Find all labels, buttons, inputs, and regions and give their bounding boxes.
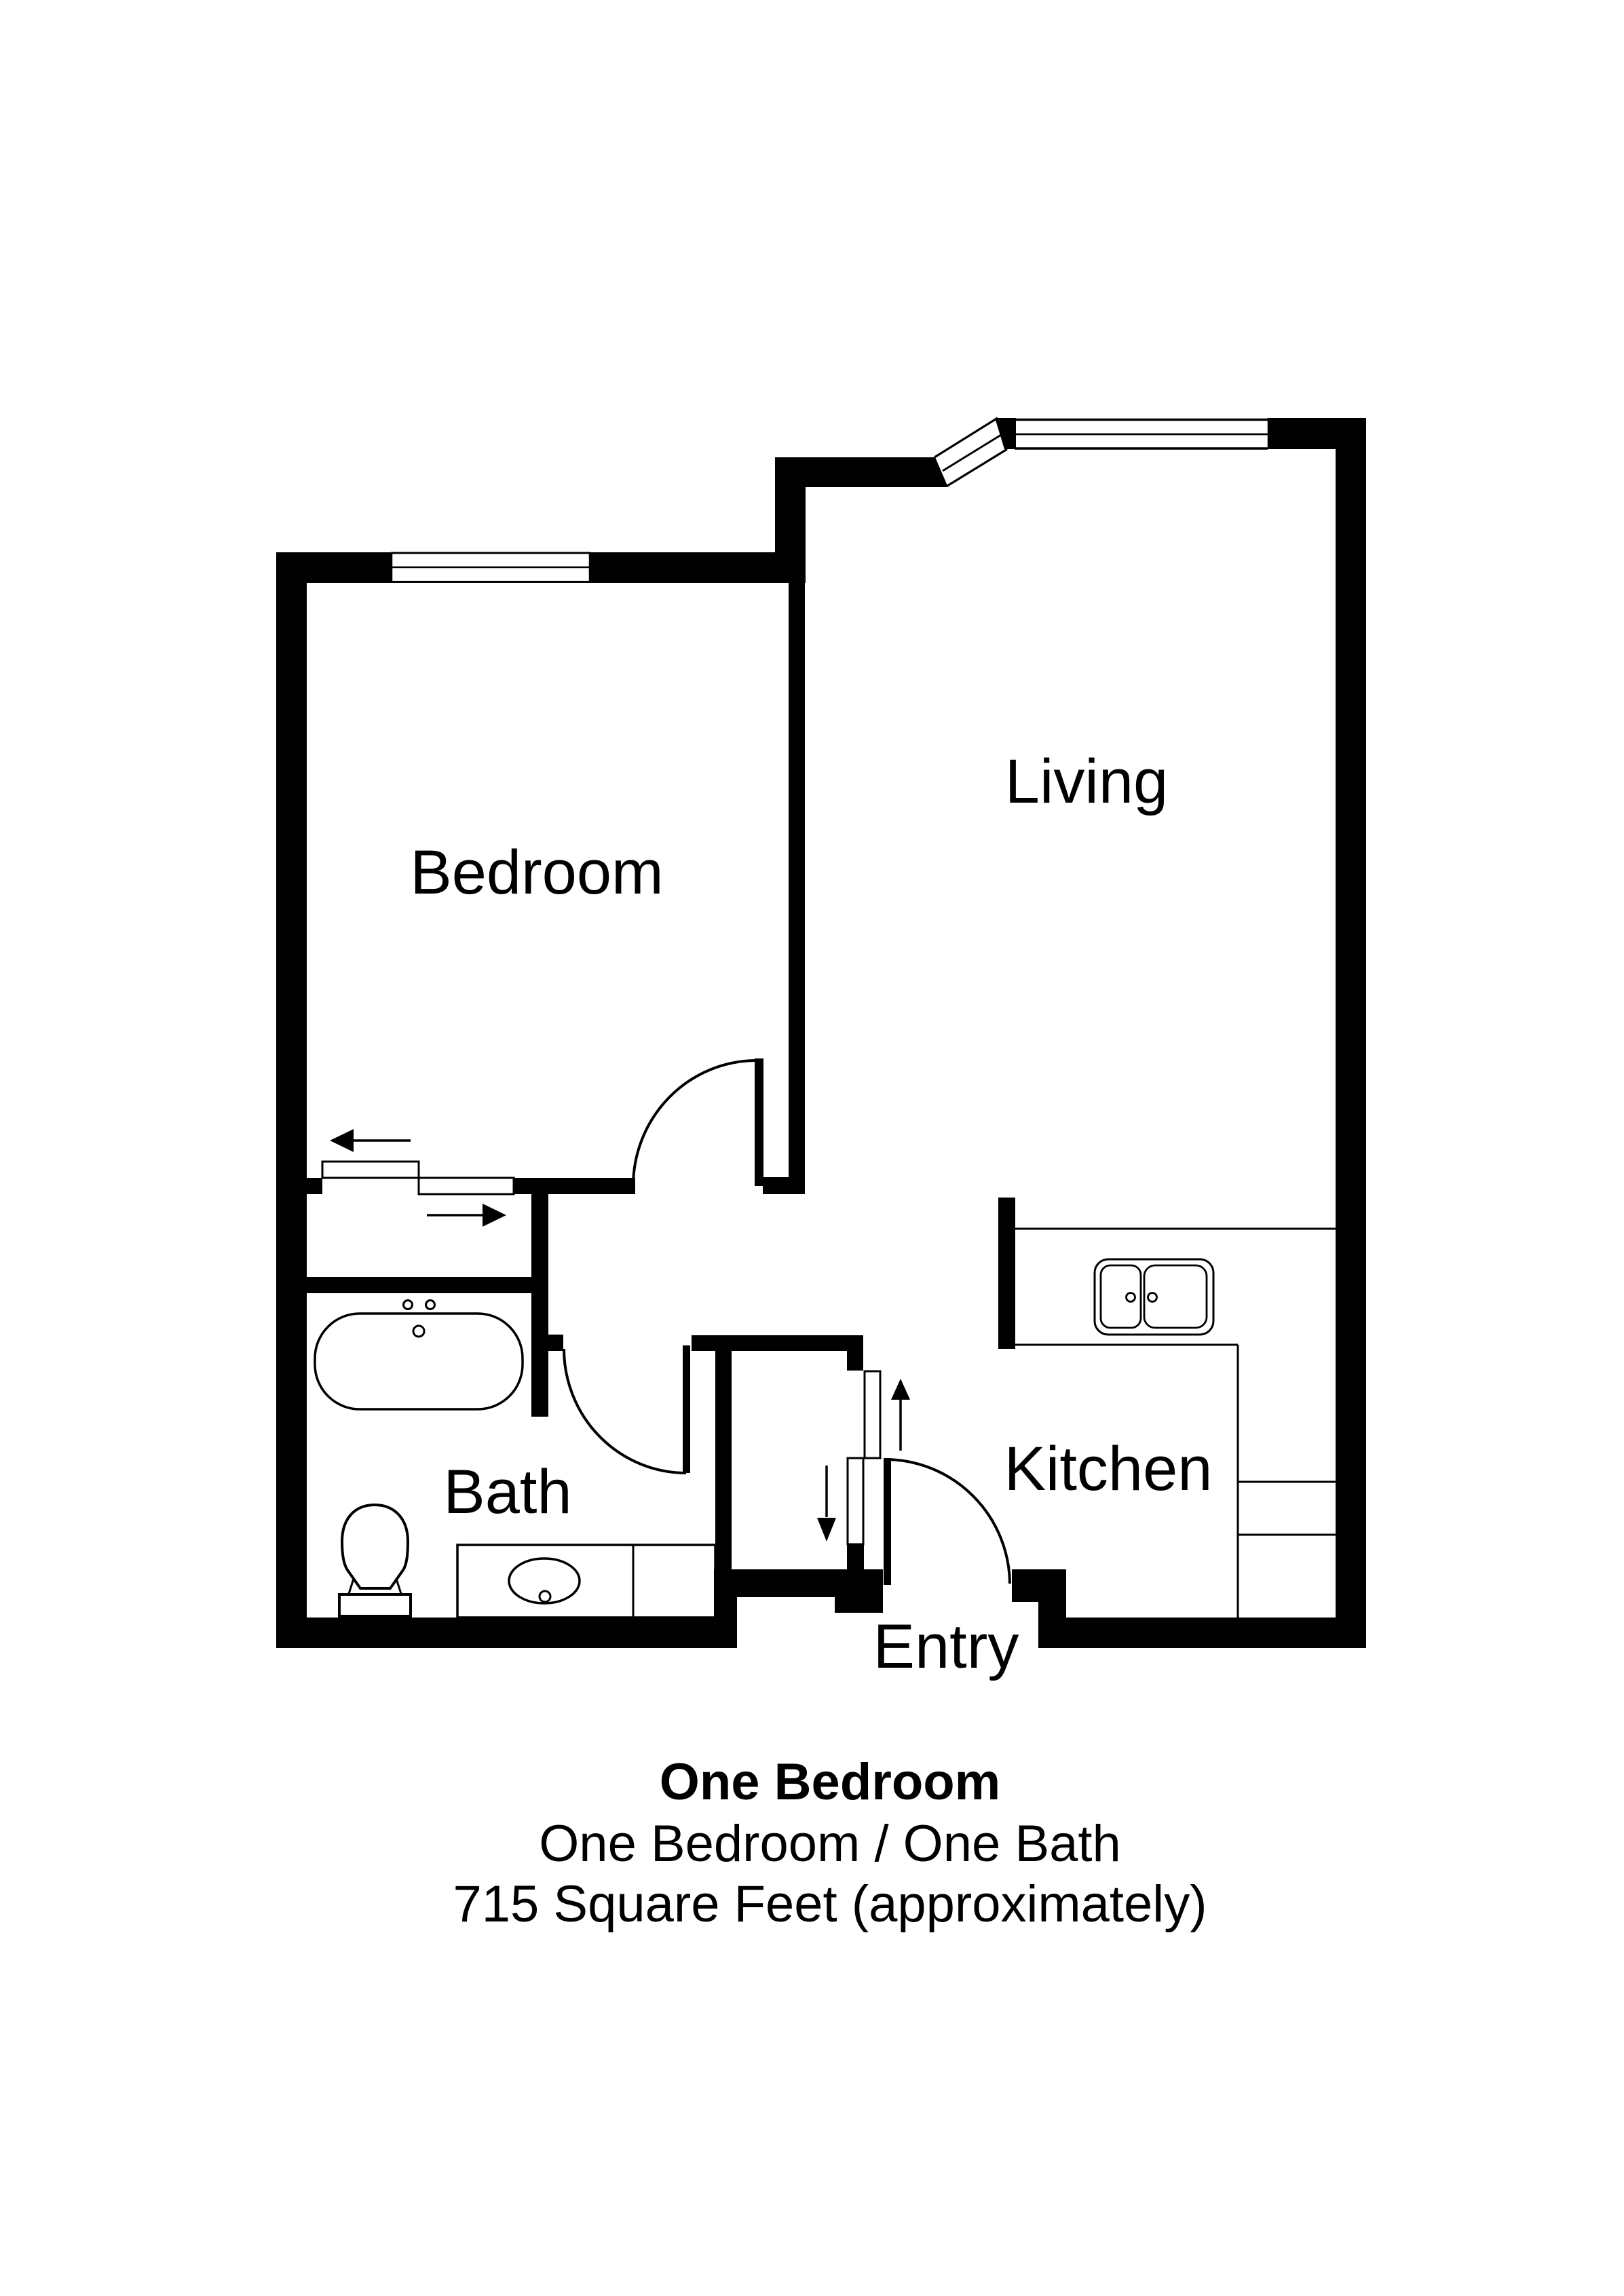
svg-text:715 Square Feet (approximately: 715 Square Feet (approximately) [453,1875,1207,1933]
svg-text:Living: Living [1005,747,1168,816]
svg-text:Bath: Bath [443,1457,571,1527]
svg-text:Entry: Entry [873,1612,1019,1681]
svg-text:One Bedroom: One Bedroom [660,1753,1001,1811]
svg-text:Bedroom: Bedroom [410,838,663,907]
svg-text:Kitchen: Kitchen [1004,1434,1213,1504]
svg-text:One Bedroom / One Bath: One Bedroom / One Bath [539,1815,1121,1873]
